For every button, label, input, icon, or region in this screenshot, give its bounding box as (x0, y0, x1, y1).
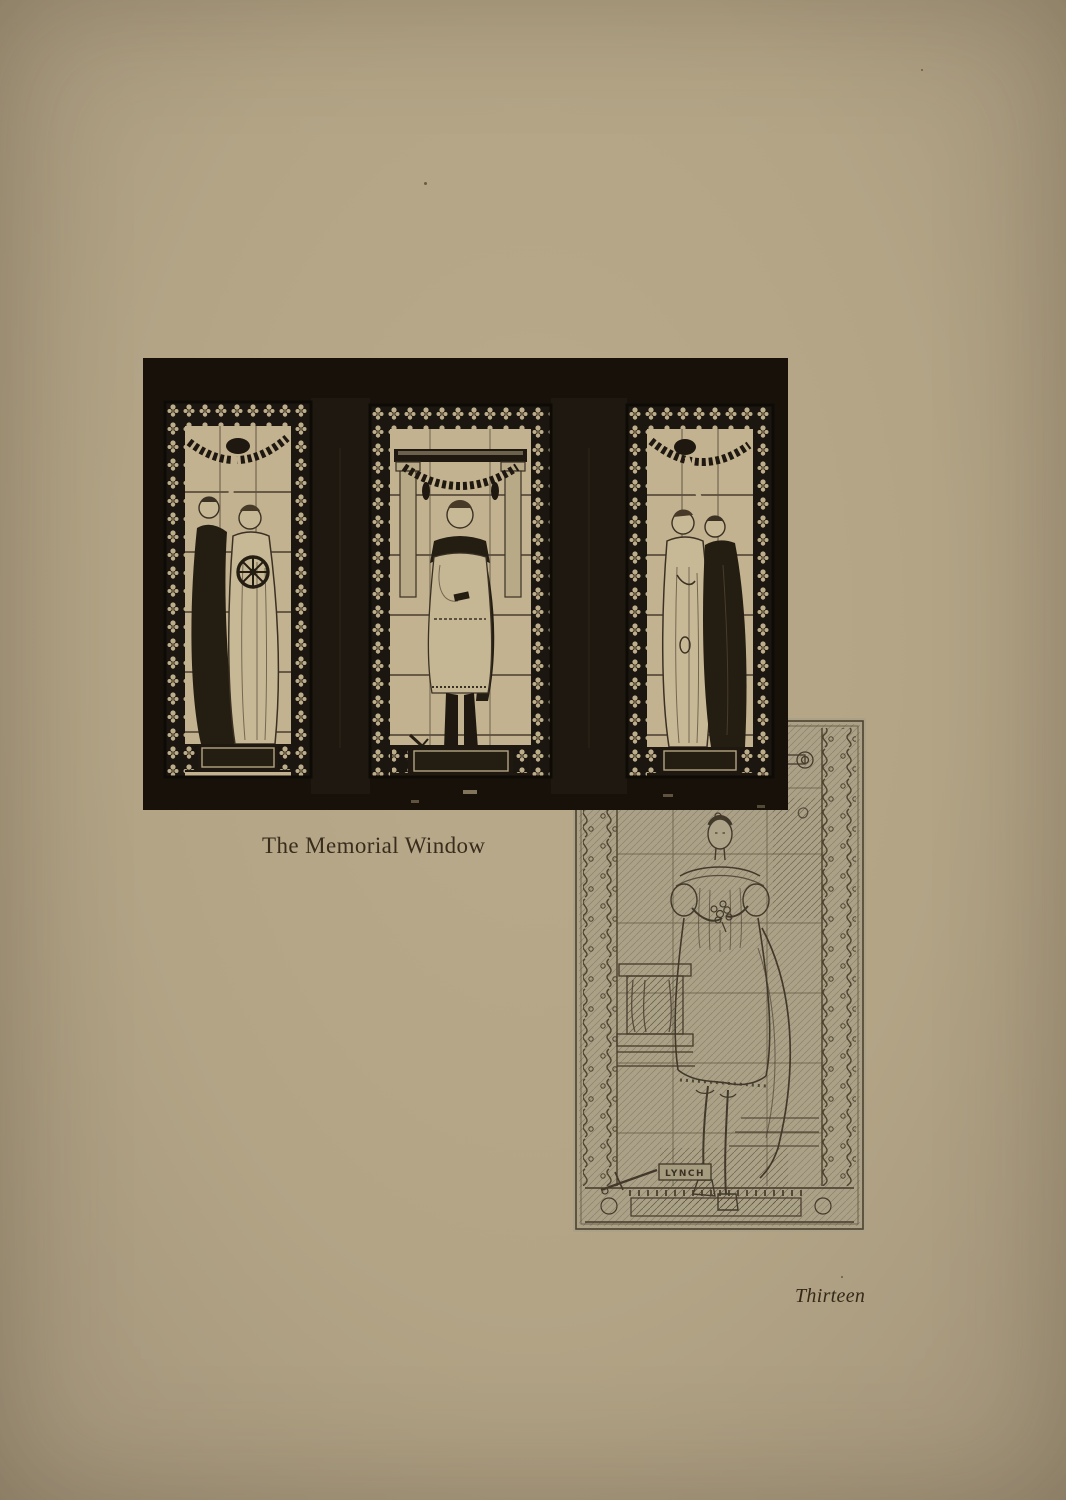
sketch-signature-plaque: LYNCH (659, 1164, 711, 1180)
window-panel-right (627, 405, 773, 777)
photo-image (143, 358, 788, 810)
figure-caption: The Memorial Window (262, 833, 485, 859)
paper-speck (424, 182, 427, 185)
page-number: Thirteen (795, 1285, 865, 1308)
window-panel-center (370, 405, 551, 777)
wheel-emblem (238, 557, 268, 587)
window-panel-left (165, 402, 311, 777)
center-panel-plaque (390, 745, 531, 777)
scanned-book-page: LYNCH (0, 0, 1066, 1500)
paper-speck (921, 69, 923, 71)
left-panel-plaque (185, 744, 291, 772)
paper-speck (841, 1276, 843, 1278)
sketch-signature: LYNCH (665, 1169, 705, 1179)
right-panel-plaque (647, 747, 753, 777)
memorial-window-photo (143, 358, 788, 810)
